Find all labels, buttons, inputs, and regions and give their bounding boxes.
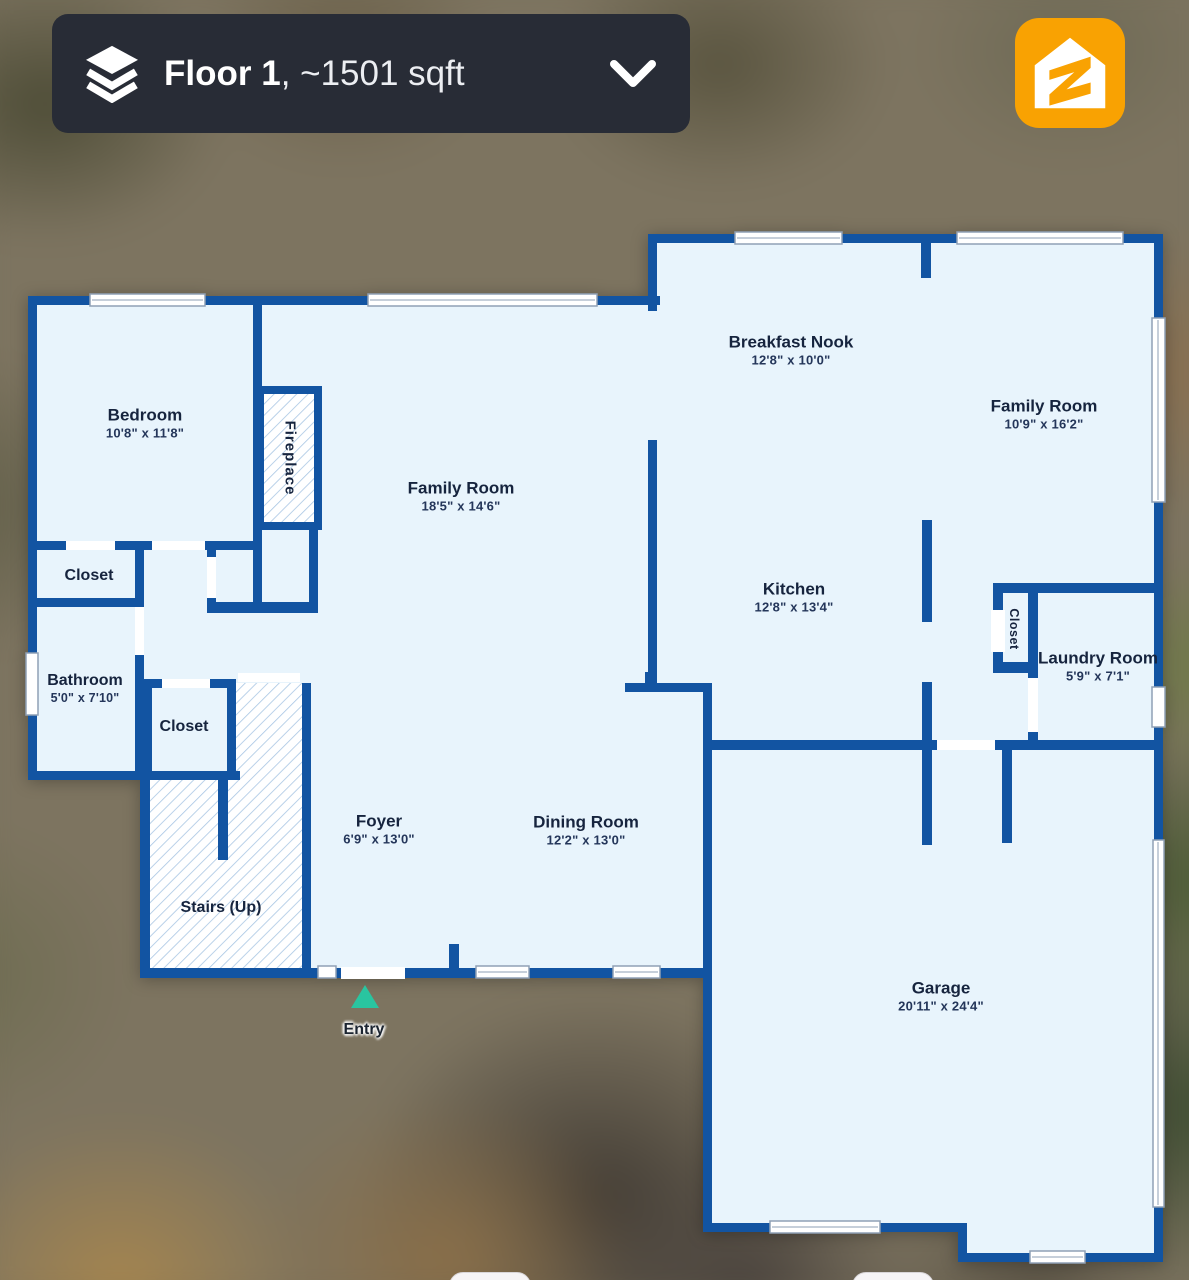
floor-area: , ~1501 sqft xyxy=(281,54,465,93)
zillow-logo xyxy=(1015,18,1125,128)
floorplan-viewer: Bedroom 10'8" x 11'8" Family Room 18'5" … xyxy=(0,0,1189,1280)
floorplan-canvas[interactable] xyxy=(0,0,1189,1280)
floor-selector-label: Floor 1, ~1501 sqft xyxy=(164,54,465,94)
bottom-control-button-right[interactable] xyxy=(852,1272,934,1280)
bottom-control-button-left[interactable] xyxy=(449,1272,531,1280)
floor-name: Floor 1 xyxy=(164,54,281,93)
layers-icon xyxy=(86,45,138,103)
entry-arrow-icon xyxy=(351,985,379,1008)
floor-selector-button[interactable]: Floor 1, ~1501 sqft xyxy=(52,14,690,133)
chevron-down-icon xyxy=(610,60,656,88)
zillow-house-icon xyxy=(1027,30,1113,116)
fireplace-box xyxy=(256,386,322,530)
entry-label: Entry xyxy=(344,1021,385,1039)
